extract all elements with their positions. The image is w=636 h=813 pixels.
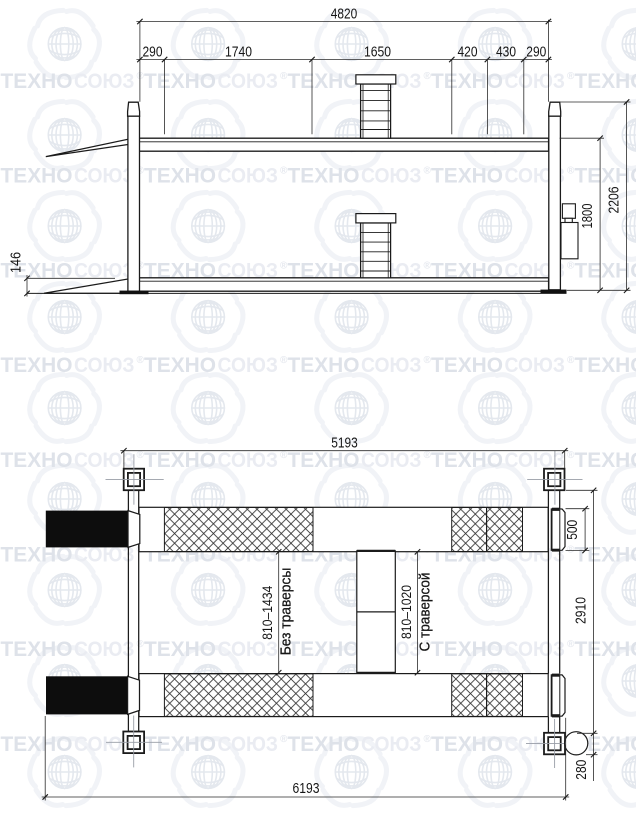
- svg-text:1650: 1650: [364, 45, 391, 61]
- svg-text:280: 280: [574, 760, 590, 780]
- svg-text:2206: 2206: [607, 187, 623, 214]
- svg-text:810–1020: 810–1020: [398, 585, 414, 639]
- svg-text:Без траверсы: Без траверсы: [278, 568, 295, 656]
- svg-text:2910: 2910: [573, 597, 589, 624]
- svg-text:810–1434: 810–1434: [259, 586, 275, 640]
- svg-text:1740: 1740: [225, 45, 252, 61]
- svg-text:290: 290: [526, 45, 546, 61]
- svg-text:4820: 4820: [331, 7, 358, 23]
- svg-text:290: 290: [143, 45, 163, 61]
- svg-text:6193: 6193: [293, 781, 320, 797]
- svg-text:1800: 1800: [580, 204, 596, 229]
- svg-text:146: 146: [9, 252, 25, 273]
- svg-text:500: 500: [565, 520, 581, 540]
- svg-text:5193: 5193: [331, 436, 358, 452]
- svg-text:С траверсой: С траверсой: [416, 573, 433, 652]
- svg-text:430: 430: [496, 45, 516, 61]
- svg-text:420: 420: [458, 45, 478, 61]
